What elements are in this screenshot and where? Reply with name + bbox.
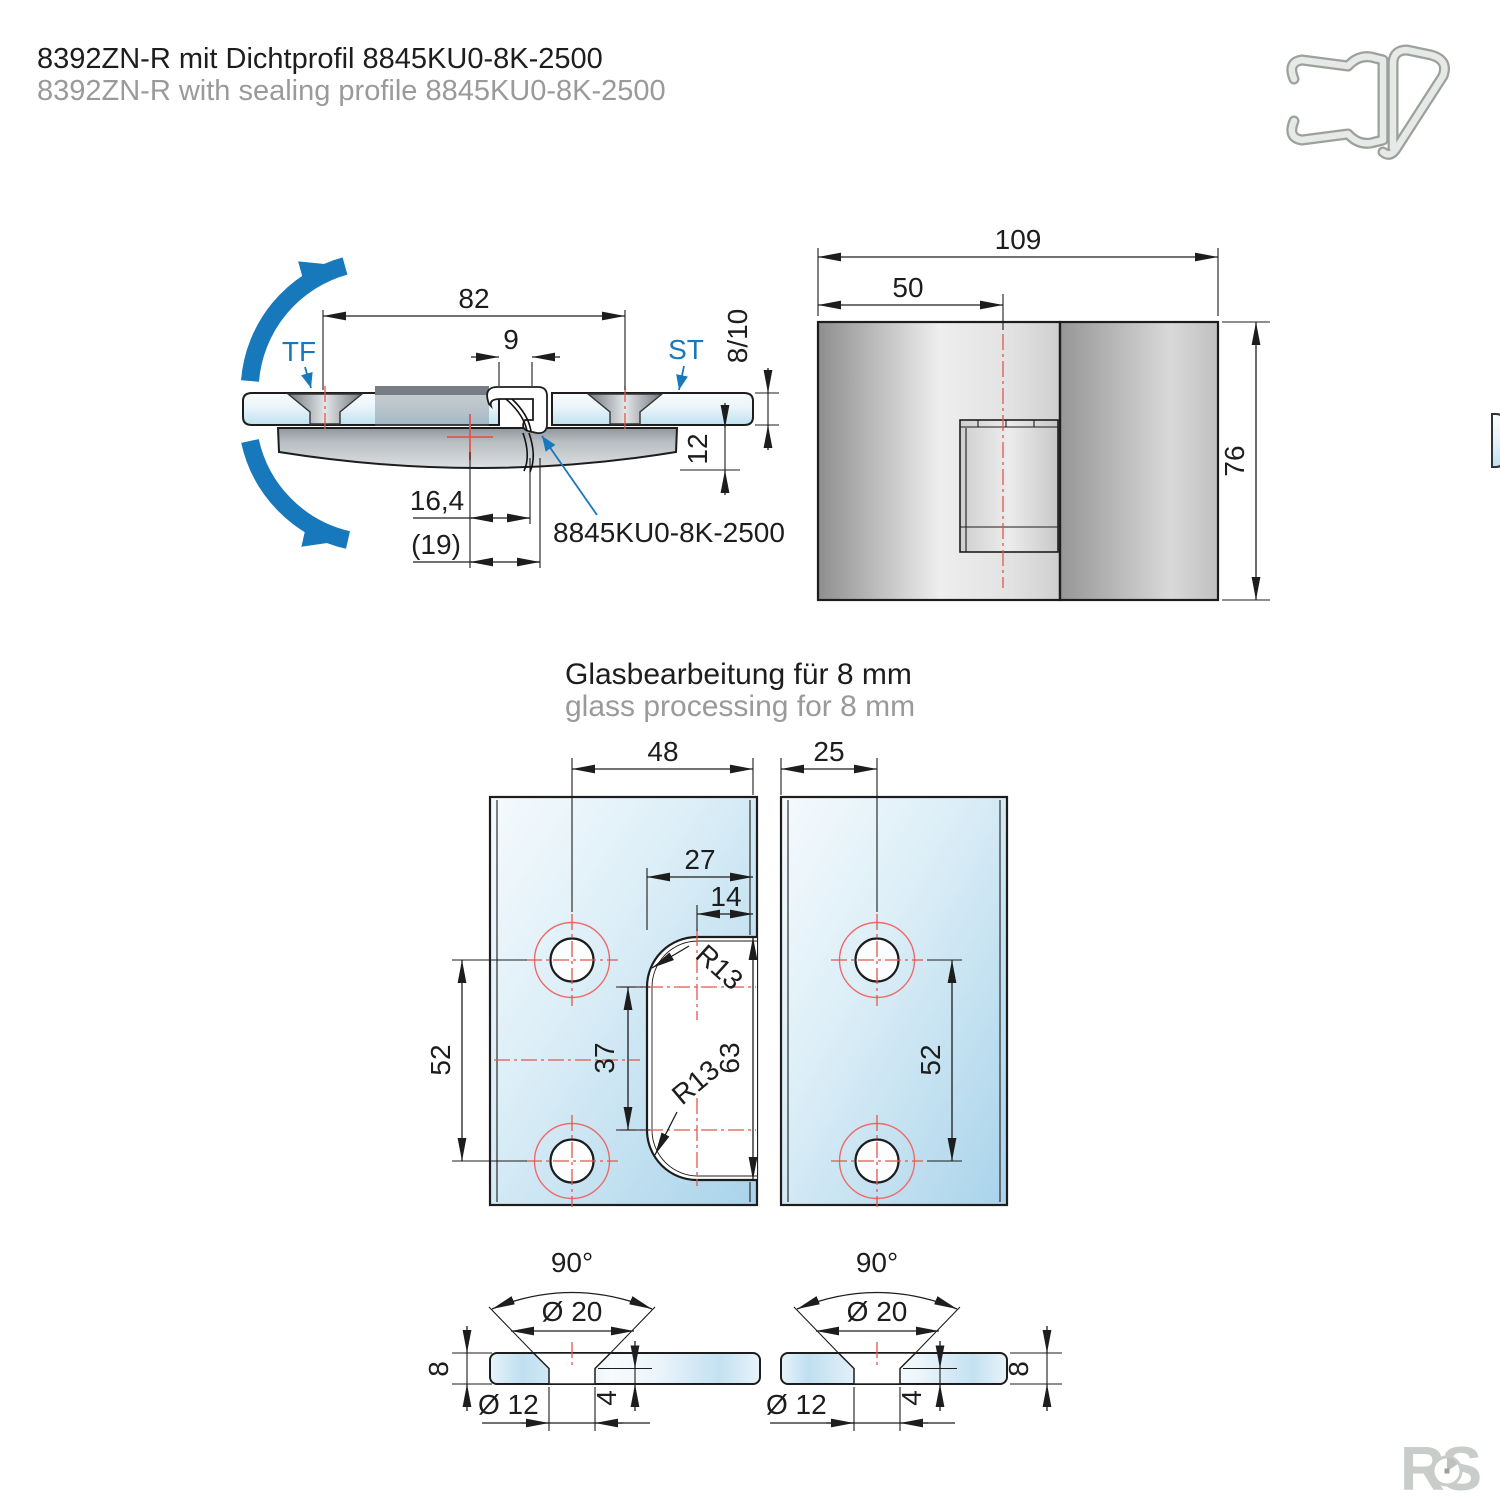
- dim-cylinder-depth-right-label: 4: [896, 1390, 927, 1406]
- drawing-page: 8392ZN-R mit Dichtprofil 8845KU0-8K-2500…: [0, 0, 1500, 1500]
- dim-pivot-offset-label: 50: [892, 272, 923, 303]
- glass-section-heading-en: glass processing for 8 mm: [565, 690, 915, 723]
- dim-glass-thickness-right-label: 8: [1003, 1361, 1034, 1377]
- hinge-leaf-right: [1060, 322, 1218, 600]
- dim-pivot-to-seal-label: 16,4: [410, 485, 465, 516]
- product-title-de: 8392ZN-R mit Dichtprofil 8845KU0-8K-2500: [37, 43, 603, 75]
- technical-drawing: 8392ZN-R mit Dichtprofil 8845KU0-8K-2500…: [0, 0, 1500, 1500]
- seal-profile-icon: [1292, 50, 1445, 154]
- cropped-glass-edge: [1492, 414, 1500, 467]
- dim-pivot-to-seal-outer-label: (19): [411, 529, 461, 560]
- side-view: 82 9 8/10 12 16,4 (19) TF ST 8845KU0-8K-…: [243, 266, 785, 568]
- dim-hole-dia-left-label: Ø 12: [478, 1389, 539, 1420]
- dim-hole-spacing-label: 82: [458, 283, 489, 314]
- dim-hole-spacing-right-label: 52: [915, 1044, 946, 1075]
- dim-angle-left-label: 90°: [551, 1247, 593, 1278]
- dim-countersink-dia-right-label: Ø 20: [847, 1296, 908, 1327]
- dim-countersink-dia-left-label: Ø 20: [542, 1296, 603, 1327]
- dim-total-width-label: 109: [995, 224, 1042, 255]
- glass-right-panel: 25 52: [781, 736, 1007, 1207]
- dim-height-label: 76: [1219, 445, 1250, 476]
- seal-callout-label: 8845KU0-8K-2500: [553, 517, 785, 548]
- dim-hole-to-edge-label: 48: [647, 736, 678, 767]
- dim-hole-spacing-left-label: 52: [425, 1044, 456, 1075]
- hinge-clamp-plate: [375, 386, 489, 395]
- dim-notch-depth-label: 27: [684, 844, 715, 875]
- front-view: 109 50 76: [818, 224, 1270, 600]
- countersink-detail-right: 90° Ø 20 Ø 12 4 8: [766, 1247, 1062, 1431]
- product-title-en: 8392ZN-R with sealing profile 8845KU0-8K…: [37, 75, 666, 107]
- dim-cylinder-depth-left-label: 4: [591, 1390, 622, 1406]
- dim-body-depth-label: 12: [682, 433, 713, 464]
- glass-pane-right: [781, 797, 1007, 1205]
- hinge-body: [278, 428, 677, 468]
- hinge-knuckle: [960, 420, 1058, 552]
- hinge-clamp-behind-glass: [375, 395, 489, 426]
- label-side-panel: ST: [668, 334, 704, 365]
- dim-radius-center-to-edge-label: 14: [710, 881, 741, 912]
- dim-notch-height-label: 63: [714, 1042, 745, 1073]
- rs-logo: RS: [1400, 1435, 1480, 1500]
- countersink-detail-left: 90° Ø 20 8 Ø 12 4: [423, 1247, 760, 1431]
- dim-angle-right-label: 90°: [856, 1247, 898, 1278]
- dim-glass-thickness-label: 8/10: [722, 309, 753, 364]
- dim-glass-thickness-left-label: 8: [423, 1361, 454, 1377]
- glass-left-panel: 48 27 14 52 37 63 R13 R13: [425, 736, 757, 1207]
- glass-section-heading-de: Glasbearbeitung für 8 mm: [565, 658, 912, 691]
- dim-radius-centers-spacing-label: 37: [589, 1042, 620, 1073]
- dim-edge-to-hole-label: 25: [813, 736, 844, 767]
- dim-seal-width-label: 9: [503, 324, 519, 355]
- label-door-leaf: TF: [282, 336, 316, 367]
- dim-hole-dia-right-label: Ø 12: [766, 1389, 827, 1420]
